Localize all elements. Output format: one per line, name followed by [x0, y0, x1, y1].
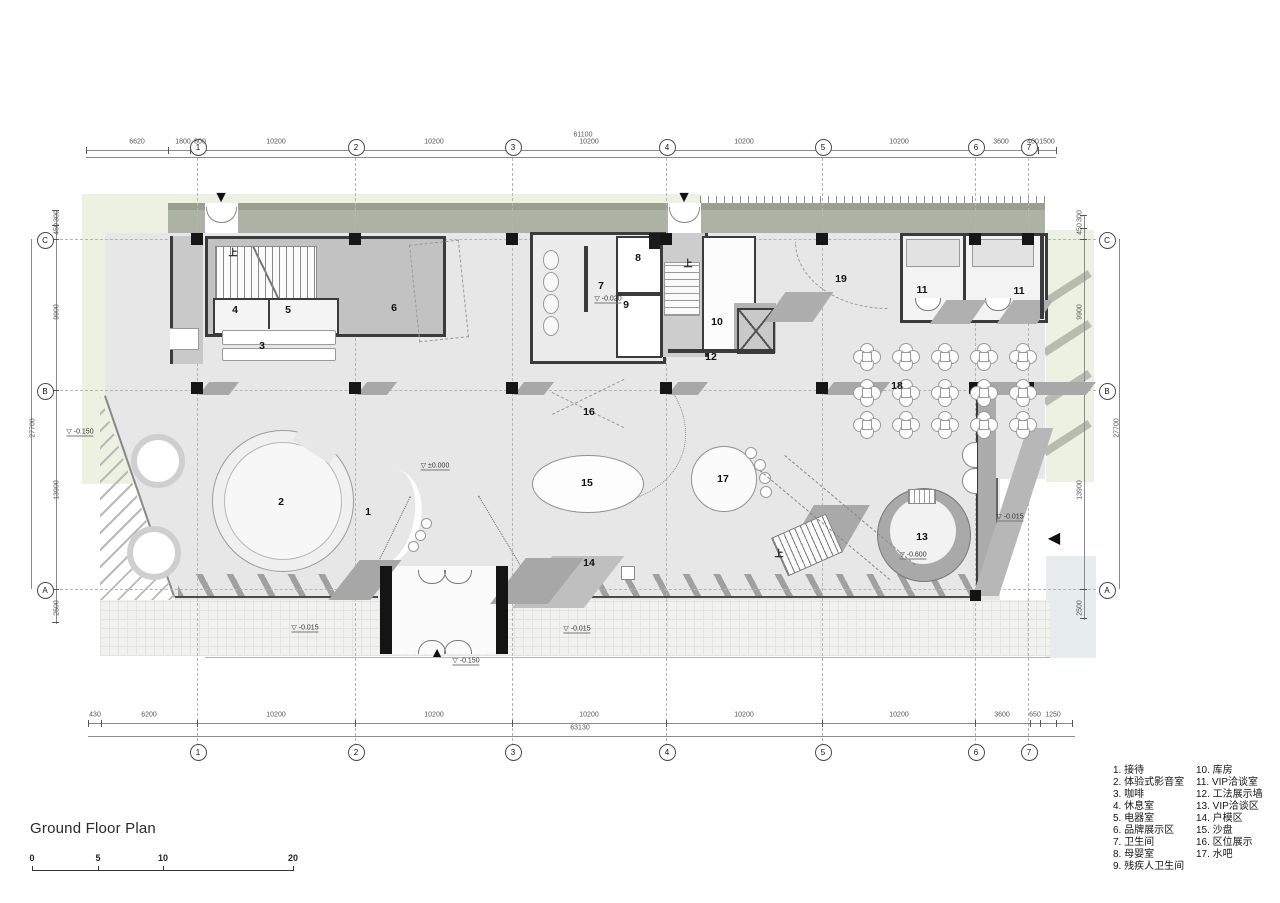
grid-bubble-top-5: 5 — [815, 139, 832, 156]
grid-bubble-right-C: C — [1099, 232, 1116, 249]
vestibule-floor — [392, 566, 496, 654]
dim-line-top-1 — [86, 150, 1056, 151]
legend-item: 14. 户模区 — [1196, 813, 1263, 825]
stair-treads — [215, 246, 317, 300]
grid-bubble-bottom-1: 1 — [190, 744, 207, 761]
legend-item: 11. VIP洽谈室 — [1196, 777, 1263, 789]
legend-item: 5. 电器室 — [1113, 813, 1184, 825]
dim-label: 430 — [89, 712, 101, 719]
scalebar-label-0: 0 — [29, 853, 34, 863]
grid-bubble-bottom-6: 6 — [968, 744, 985, 761]
display-dashed-trapezoid — [409, 240, 469, 343]
wc-fixture — [543, 250, 559, 270]
chair — [760, 486, 772, 498]
scale-bar — [32, 870, 293, 871]
toilet-partition — [584, 246, 588, 312]
dim-label: 9900 — [54, 304, 61, 320]
dim-label: 10200 — [266, 712, 285, 719]
vip-circle-inner — [890, 498, 956, 564]
planter-ring — [127, 526, 181, 580]
dim-label: 1800 — [175, 139, 191, 146]
grid-bubble-bottom-2: 2 — [348, 744, 365, 761]
pavement — [100, 600, 1050, 656]
right-wall-edge — [976, 398, 978, 590]
legend-item: 9. 残疾人卫生间 — [1113, 861, 1184, 873]
dim-label: 10200 — [889, 712, 908, 719]
dim-tick — [822, 720, 823, 727]
dim-label: 10200 — [734, 139, 753, 146]
dim-label: 1500 — [1039, 139, 1055, 146]
dim-tick — [52, 210, 59, 211]
dim-tick — [52, 225, 59, 226]
dim-label: 6620 — [129, 139, 145, 146]
dim-line-right-2 — [1119, 239, 1120, 589]
dim-line-bottom-1 — [88, 723, 1072, 724]
drawing-sheet: 11223344556677CCBBAA66201800800102001020… — [0, 0, 1280, 903]
legend-item: 8. 母婴室 — [1113, 849, 1184, 861]
site-blue-right — [1046, 556, 1096, 658]
grid-bubble-top-6: 6 — [968, 139, 985, 156]
dim-tick — [512, 720, 513, 727]
dim-label: 27700 — [30, 418, 37, 437]
legend-item: 2. 体验式影音室 — [1113, 777, 1184, 789]
dim-tick — [975, 147, 976, 154]
coffee-counter — [222, 330, 336, 345]
planter-ring — [131, 434, 185, 488]
dim-label: 1250 — [1045, 712, 1061, 719]
dim-label: 400 — [1027, 139, 1039, 146]
legend-item: 3. 咖啡 — [1113, 789, 1184, 801]
dim-tick — [1030, 720, 1031, 727]
legend-column-1: 1. 接待2. 体验式影音室3. 咖啡4. 休息室5. 电器室6. 品牌展示区7… — [1113, 765, 1184, 873]
entrance-jamb — [380, 566, 392, 654]
pavement-edge-line — [205, 657, 1050, 658]
dim-tick — [52, 622, 59, 623]
dim-tick — [52, 390, 59, 391]
grid-bubble-right-B: B — [1099, 383, 1116, 400]
grid-bubble-bottom-4: 4 — [659, 744, 676, 761]
grid-bubble-left-C: C — [37, 232, 54, 249]
dim-label: 300 — [1077, 210, 1084, 222]
grid-bubble-top-4: 4 — [659, 139, 676, 156]
dim-tick — [101, 720, 102, 727]
corner-column — [970, 590, 981, 601]
scalebar-label-5: 5 — [95, 853, 100, 863]
core-stair-treads — [664, 262, 700, 316]
dim-tick — [1056, 147, 1057, 154]
grid-bubble-right-A: A — [1099, 582, 1116, 599]
dim-tick — [1072, 720, 1073, 727]
dim-tick — [355, 147, 356, 154]
dim-tick — [168, 147, 169, 154]
section-left-icon: ◀ — [1048, 528, 1060, 548]
dim-tick — [1040, 720, 1041, 727]
dim-label: 10200 — [424, 139, 443, 146]
dim-label: 3600 — [993, 139, 1009, 146]
chair — [745, 447, 757, 459]
legend-item: 6. 品牌展示区 — [1113, 825, 1184, 837]
legend-item: 4. 休息室 — [1113, 801, 1184, 813]
stool — [421, 518, 432, 529]
dim-line-left-2 — [31, 239, 32, 589]
dim-label: 800 — [194, 139, 206, 146]
legend-item: 15. 沙盘 — [1196, 825, 1263, 837]
dim-tick — [1056, 720, 1057, 727]
dim-label: 13900 — [1077, 480, 1084, 499]
scalebar-tick — [293, 866, 294, 871]
dim-label: 13900 — [54, 480, 61, 499]
display-wall-12 — [668, 349, 774, 353]
dim-label: 10200 — [266, 139, 285, 146]
legend-item: 10. 库房 — [1196, 765, 1263, 777]
dim-line-top-2 — [86, 157, 1056, 158]
vanity — [972, 239, 1034, 267]
vip-circle-steps — [908, 489, 936, 504]
dim-tick — [666, 147, 667, 154]
grid-bubble-top-2: 2 — [348, 139, 365, 156]
dim-tick — [1080, 228, 1087, 229]
dim-tick — [88, 720, 89, 727]
grid-bubble-bottom-3: 3 — [505, 744, 522, 761]
dim-tick — [822, 147, 823, 154]
stool — [408, 541, 419, 552]
dim-tick — [666, 720, 667, 727]
dim-tick — [52, 239, 59, 240]
dim-label: 2500 — [54, 600, 61, 616]
dim-tick — [197, 147, 198, 154]
legend-item: 16. 区位展示 — [1196, 837, 1263, 849]
dim-tick — [512, 147, 513, 154]
dim-tick — [1080, 215, 1087, 216]
scalebar-label-10: 10 — [158, 853, 168, 863]
dim-line-bottom-2 — [88, 736, 1075, 737]
dim-label: 10200 — [424, 712, 443, 719]
legend-column-2: 10. 库房11. VIP洽谈室12. 工法展示墙13. VIP洽谈区14. 户… — [1196, 765, 1263, 861]
legend-item: 12. 工法展示墙 — [1196, 789, 1263, 801]
model-pedestal — [621, 566, 635, 580]
wc-fixture — [543, 294, 559, 314]
dim-label: 3600 — [994, 712, 1010, 719]
dim-tick — [1038, 147, 1039, 154]
dim-label: 10200 — [579, 139, 598, 146]
grid-bubble-top-7: 7 — [1021, 139, 1038, 156]
legend-item: 7. 卫生间 — [1113, 837, 1184, 849]
dim-label-total: 61100 — [574, 132, 593, 139]
dim-tick — [52, 589, 59, 590]
grid-bubble-bottom-5: 5 — [815, 744, 832, 761]
page-title: Ground Floor Plan — [30, 820, 156, 837]
grid-bubble-left-B: B — [37, 383, 54, 400]
dim-tick — [190, 147, 191, 154]
vip-right-wall — [1040, 233, 1044, 319]
vanity — [906, 239, 960, 267]
dim-label: 450 — [54, 223, 61, 235]
stool — [415, 530, 426, 541]
grid-bubble-top-3: 3 — [505, 139, 522, 156]
room-divider — [268, 300, 270, 329]
grid-bubble-left-A: A — [37, 582, 54, 599]
dim-label: 300 — [54, 210, 61, 222]
legend-item: 1. 接待 — [1113, 765, 1184, 777]
wc-fixture — [543, 272, 559, 292]
canopy-mullions — [700, 196, 1045, 203]
entrance-jamb — [496, 566, 508, 654]
dim-label: 10200 — [579, 712, 598, 719]
grid-bubble-bottom-7: 7 — [1021, 744, 1038, 761]
dim-label: 10200 — [734, 712, 753, 719]
grid-bubble-top-1: 1 — [190, 139, 207, 156]
dim-tick — [86, 147, 87, 154]
scalebar-label-20: 20 — [288, 853, 298, 863]
dim-label: 27700 — [1114, 418, 1121, 437]
legend-item: 17. 水吧 — [1196, 849, 1263, 861]
dim-label: 6200 — [141, 712, 157, 719]
side-door — [170, 328, 199, 350]
legend-item: 13. VIP洽谈区 — [1196, 801, 1263, 813]
dim-tick — [355, 720, 356, 727]
coffee-counter — [222, 348, 336, 361]
dim-label: 10200 — [889, 139, 908, 146]
dim-label: 650 — [1029, 712, 1041, 719]
dim-tick — [197, 720, 198, 727]
dim-label-total: 63130 — [570, 725, 589, 732]
dim-tick — [1028, 147, 1029, 154]
dim-line-left-1 — [56, 210, 57, 624]
dim-tick — [975, 720, 976, 727]
